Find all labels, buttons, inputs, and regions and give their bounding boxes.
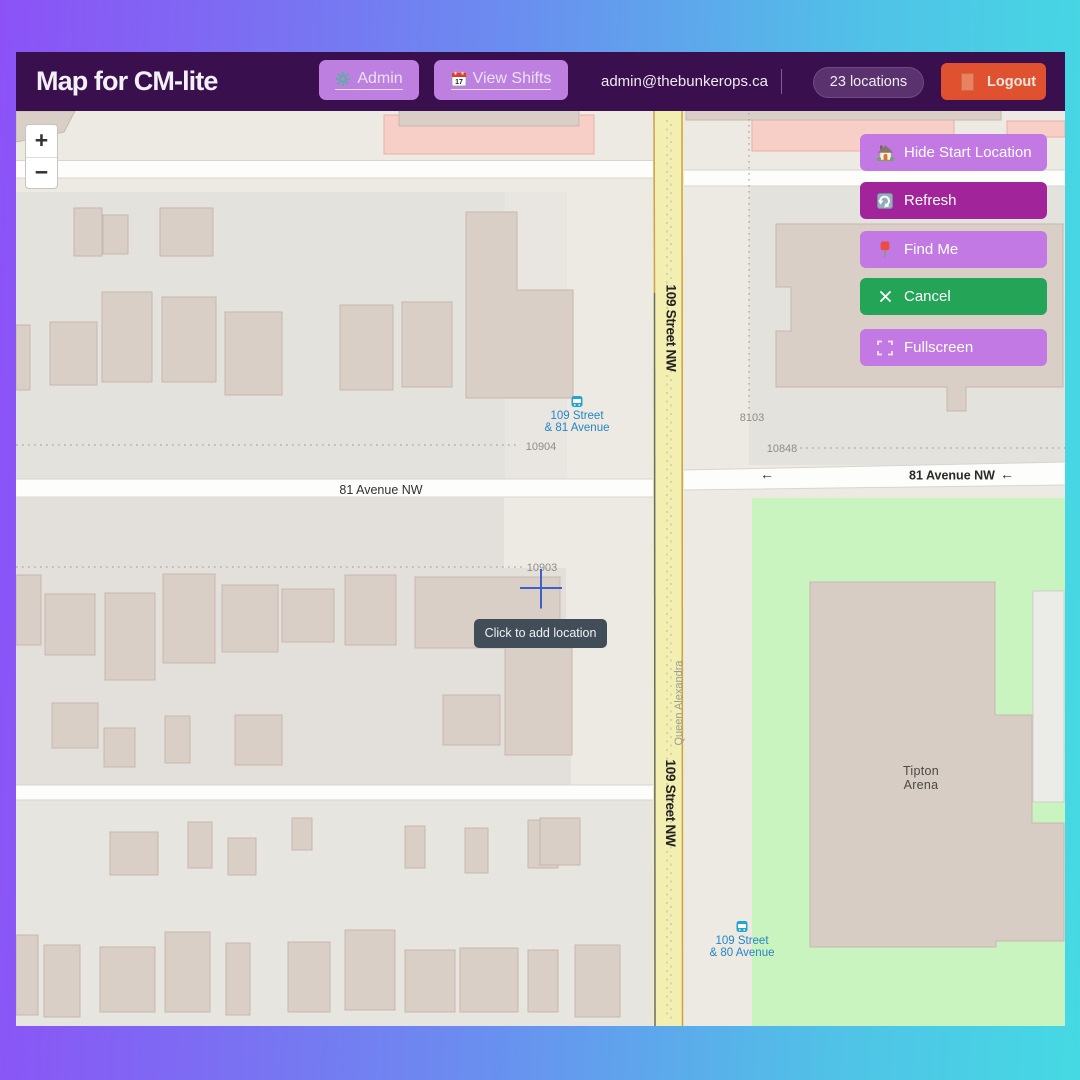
svg-text:←: ← <box>760 466 774 482</box>
svg-text:81 Avenue NW: 81 Avenue NW <box>909 469 995 483</box>
svg-text:109 Street: 109 Street <box>550 410 604 422</box>
svg-text:10904: 10904 <box>526 441 557 453</box>
svg-text:109 Street: 109 Street <box>715 935 769 947</box>
svg-text:109 Street NW: 109 Street NW <box>663 760 678 847</box>
svg-text:Queen Alexandra: Queen Alexandra <box>673 660 685 746</box>
svg-text:81 Avenue NW: 81 Avenue NW <box>339 483 422 497</box>
svg-text:8103: 8103 <box>740 412 764 424</box>
svg-text:←: ← <box>1000 466 1014 482</box>
svg-text:& 80 Avenue: & 80 Avenue <box>709 947 774 959</box>
svg-text:10848: 10848 <box>767 443 798 455</box>
svg-text:109 Street NW: 109 Street NW <box>664 285 679 372</box>
svg-text:Tipton: Tipton <box>903 764 939 778</box>
svg-text:& 81 Avenue: & 81 Avenue <box>544 422 609 434</box>
svg-text:17: 17 <box>455 79 463 86</box>
svg-text:Arena: Arena <box>904 778 939 792</box>
